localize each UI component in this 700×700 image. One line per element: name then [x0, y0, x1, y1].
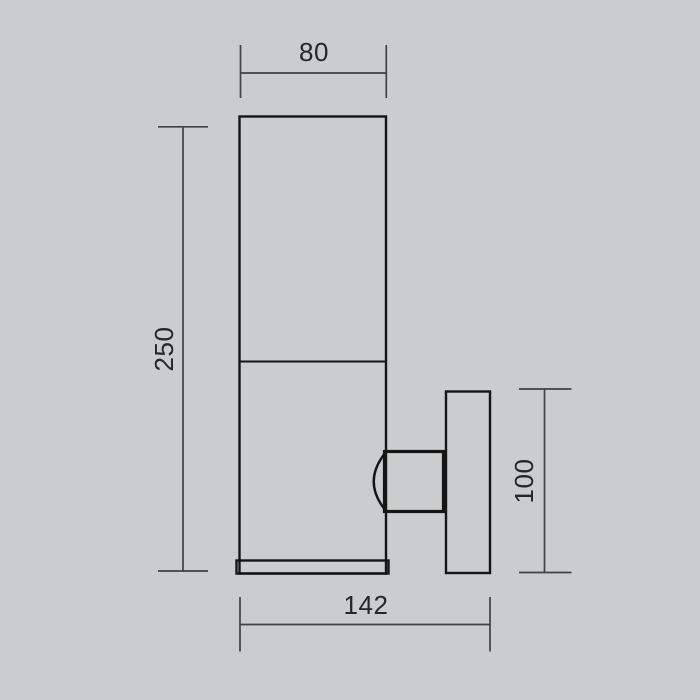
mounting-arm-outline	[385, 452, 444, 512]
lamp-body-outline	[240, 117, 387, 574]
dimension-bottom-depth: 142	[240, 590, 490, 652]
dim-left-height-label: 250	[149, 327, 179, 372]
dimension-drawing: 80 250 100 142	[0, 0, 700, 700]
drawing-canvas: 80 250 100 142	[0, 0, 700, 700]
dim-top-width-label: 80	[299, 37, 329, 67]
fixture	[237, 117, 491, 574]
dimension-left-height: 250	[149, 127, 208, 571]
wall-plate-outline	[446, 392, 490, 574]
dimension-top-width: 80	[241, 37, 387, 98]
bottom-cap-outline	[237, 561, 389, 574]
dim-right-height-label: 100	[509, 459, 539, 504]
dim-bottom-depth-label: 142	[344, 590, 389, 620]
dimension-right-height: 100	[509, 389, 572, 573]
